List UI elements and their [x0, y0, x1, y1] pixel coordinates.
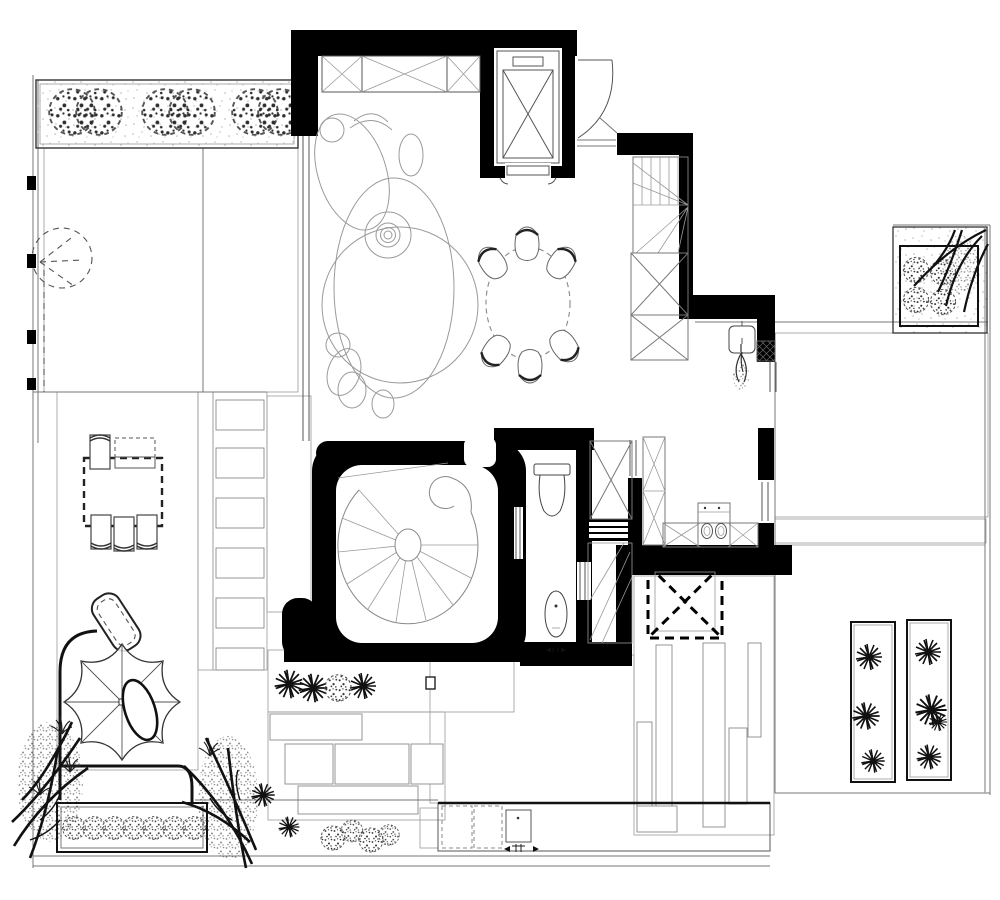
elevator-door-gap	[505, 163, 551, 178]
drain-dot	[517, 817, 520, 820]
shrub	[143, 817, 166, 840]
window-slot	[577, 562, 591, 600]
window-slot	[514, 507, 523, 559]
shrub	[76, 89, 122, 135]
kitchen-east-wall	[758, 523, 774, 547]
sw-planter-bed	[57, 803, 207, 852]
fixture-dot	[555, 605, 558, 608]
outdoor-chair	[137, 515, 157, 549]
dining-chair	[518, 350, 542, 384]
cooktop-knob	[704, 507, 706, 509]
toilet-bowl	[539, 475, 565, 516]
shrub	[930, 289, 955, 314]
shrub	[163, 817, 186, 840]
shrub	[903, 257, 928, 282]
shrub	[169, 89, 215, 135]
cooktop-knob	[718, 507, 720, 509]
shrub	[903, 287, 928, 312]
elevator	[480, 32, 575, 184]
floor-plan-canvas	[0, 0, 1000, 900]
bathroom-bottom-wall	[520, 642, 618, 666]
shrub	[325, 675, 351, 701]
shrub	[83, 817, 106, 840]
spiral-newel	[395, 529, 421, 561]
wall-tick	[27, 254, 36, 268]
shrub	[379, 825, 399, 845]
outdoor-chair	[91, 515, 111, 549]
outdoor-chair	[90, 435, 110, 469]
floor-fixture-oval	[545, 591, 567, 637]
wall	[679, 133, 693, 315]
floor-plan-page	[0, 0, 1000, 900]
wall-tick	[27, 330, 36, 344]
wall-tick	[27, 176, 36, 190]
step-bar	[589, 522, 628, 526]
wall-tick	[27, 378, 36, 390]
wall	[679, 295, 775, 319]
step-bar	[589, 534, 628, 538]
curved-room-top	[316, 441, 468, 465]
kitchen-east-wall	[758, 428, 774, 480]
outdoor-bench	[115, 438, 155, 457]
curved-room-base	[284, 646, 530, 662]
shrub	[103, 817, 126, 840]
ne-planter	[893, 227, 988, 333]
garden-light-symbol	[426, 677, 435, 689]
shrub	[123, 817, 146, 840]
toilet-tank	[534, 464, 570, 475]
curved-room-doorway	[464, 437, 496, 467]
hatched-pier-fill	[757, 341, 775, 361]
step-bar	[589, 528, 628, 532]
dining-chair	[515, 227, 539, 261]
outdoor-chair	[114, 517, 134, 551]
